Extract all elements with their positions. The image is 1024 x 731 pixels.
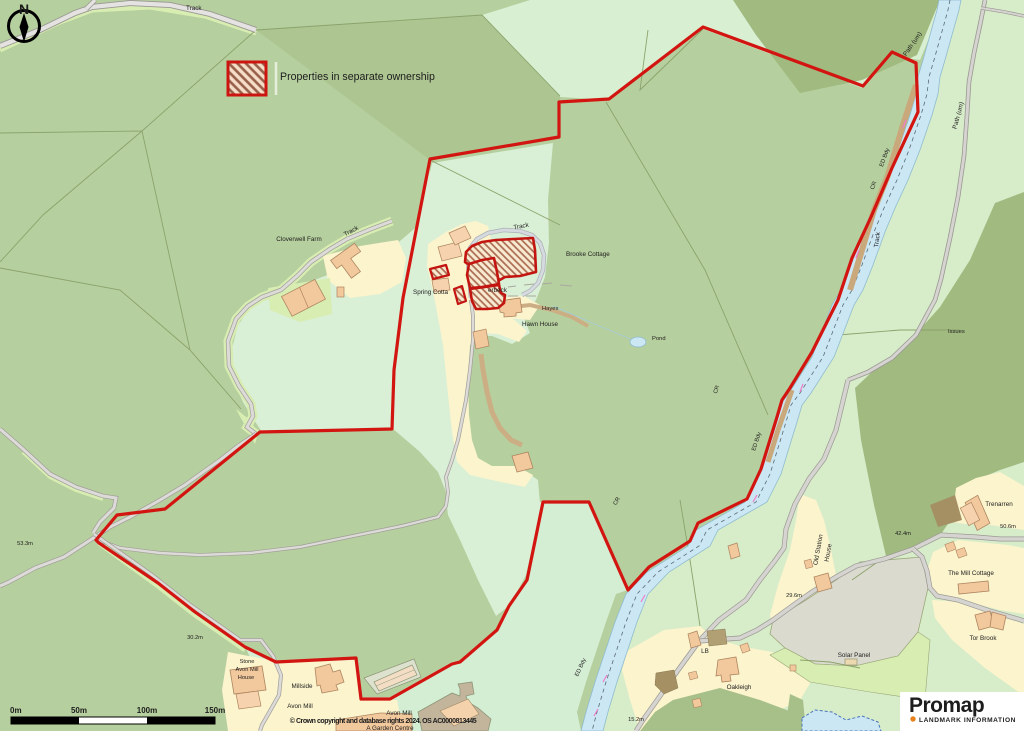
svg-text:30.2m: 30.2m <box>187 635 203 641</box>
svg-text:Cloverwell Farm: Cloverwell Farm <box>276 236 321 243</box>
svg-text:150m: 150m <box>205 706 225 715</box>
svg-text:A Garden Centre: A Garden Centre <box>366 725 414 731</box>
svg-text:LANDMARK INFORMATION: LANDMARK INFORMATION <box>919 717 1016 724</box>
svg-text:Trenarren: Trenarren <box>985 501 1013 508</box>
svg-text:15.2m: 15.2m <box>628 717 644 723</box>
svg-text:© Crown copyright and database: © Crown copyright and database rights 20… <box>290 717 477 725</box>
svg-text:N: N <box>19 1 29 17</box>
svg-text:erbeck: erbeck <box>488 287 508 294</box>
svg-text:Avon Mill: Avon Mill <box>386 710 411 717</box>
svg-text:LB: LB <box>701 648 709 655</box>
svg-text:Properties in separate ownersh: Properties in separate ownership <box>280 71 435 83</box>
svg-text:100m: 100m <box>137 706 157 715</box>
svg-text:Avon Mill: Avon Mill <box>236 667 259 673</box>
svg-text:The Mill Cottage: The Mill Cottage <box>948 570 994 577</box>
svg-text:Issues: Issues <box>948 329 965 335</box>
svg-text:Track: Track <box>186 5 202 12</box>
svg-text:29.6m: 29.6m <box>786 593 802 599</box>
svg-text:Millside: Millside <box>292 683 313 690</box>
svg-text:Promap: Promap <box>909 694 984 717</box>
svg-text:53.3m: 53.3m <box>17 541 33 547</box>
svg-text:42.4m: 42.4m <box>895 531 911 537</box>
svg-text:House: House <box>238 675 254 681</box>
svg-text:Avon Mill: Avon Mill <box>287 703 312 710</box>
svg-text:Solar Panel: Solar Panel <box>838 652 871 659</box>
svg-text:Spring Cotta: Spring Cotta <box>413 289 448 296</box>
svg-text:Brooke Cottage: Brooke Cottage <box>566 251 610 258</box>
svg-text:50m: 50m <box>71 706 87 715</box>
svg-text:Stone: Stone <box>240 659 255 665</box>
svg-text:Hayes: Hayes <box>542 306 559 312</box>
svg-text:Tor Brook: Tor Brook <box>970 635 998 642</box>
svg-text:Oakleigh: Oakleigh <box>727 684 752 691</box>
svg-text:0m: 0m <box>10 706 22 715</box>
svg-text:50.6m: 50.6m <box>1000 524 1016 530</box>
svg-text:Pond: Pond <box>652 336 666 342</box>
svg-text:Hawn House: Hawn House <box>522 321 559 328</box>
